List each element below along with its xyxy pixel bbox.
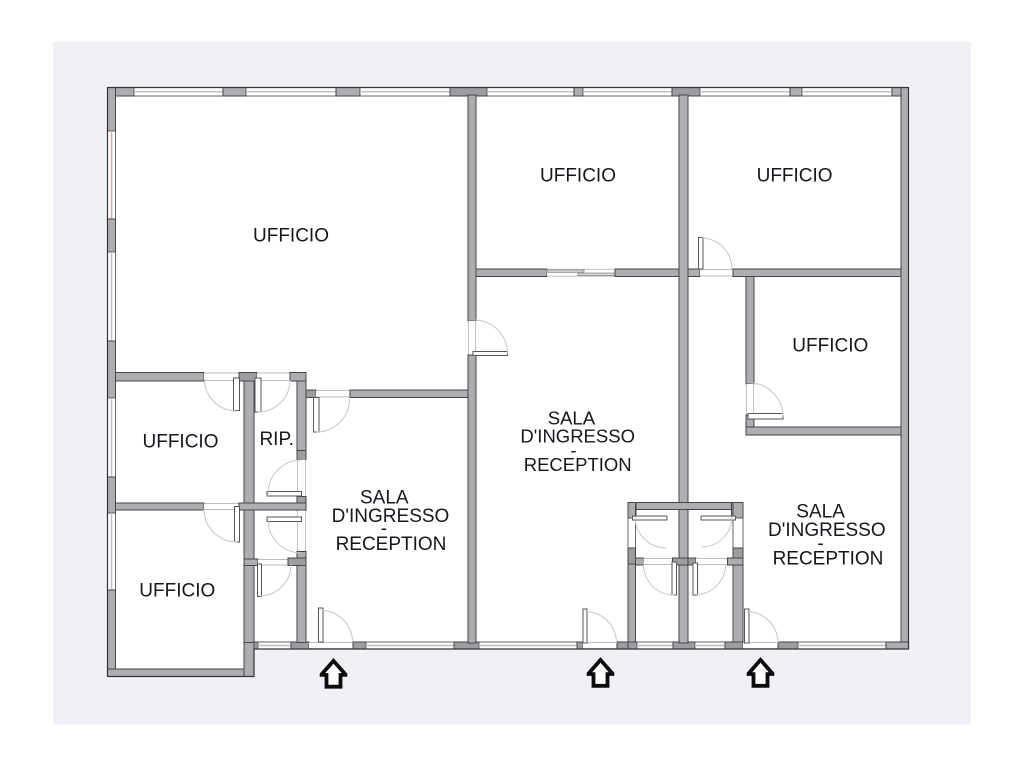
svg-text:D'INGRESSO: D'INGRESSO xyxy=(768,520,886,541)
svg-text:RECEPTION: RECEPTION xyxy=(336,534,447,555)
svg-text:RIP.: RIP. xyxy=(259,429,294,450)
svg-text:D'INGRESSO: D'INGRESSO xyxy=(520,426,635,447)
svg-text:UFFICIO: UFFICIO xyxy=(540,165,616,186)
svg-text:RECEPTION: RECEPTION xyxy=(773,548,884,569)
svg-text:RECEPTION: RECEPTION xyxy=(524,454,632,475)
svg-text:UFFICIO: UFFICIO xyxy=(253,225,329,246)
svg-text:D'INGRESSO: D'INGRESSO xyxy=(332,506,450,527)
svg-text:UFFICIO: UFFICIO xyxy=(139,581,215,602)
svg-text:UFFICIO: UFFICIO xyxy=(143,432,219,453)
svg-text:UFFICIO: UFFICIO xyxy=(757,166,833,187)
svg-text:UFFICIO: UFFICIO xyxy=(792,335,868,356)
